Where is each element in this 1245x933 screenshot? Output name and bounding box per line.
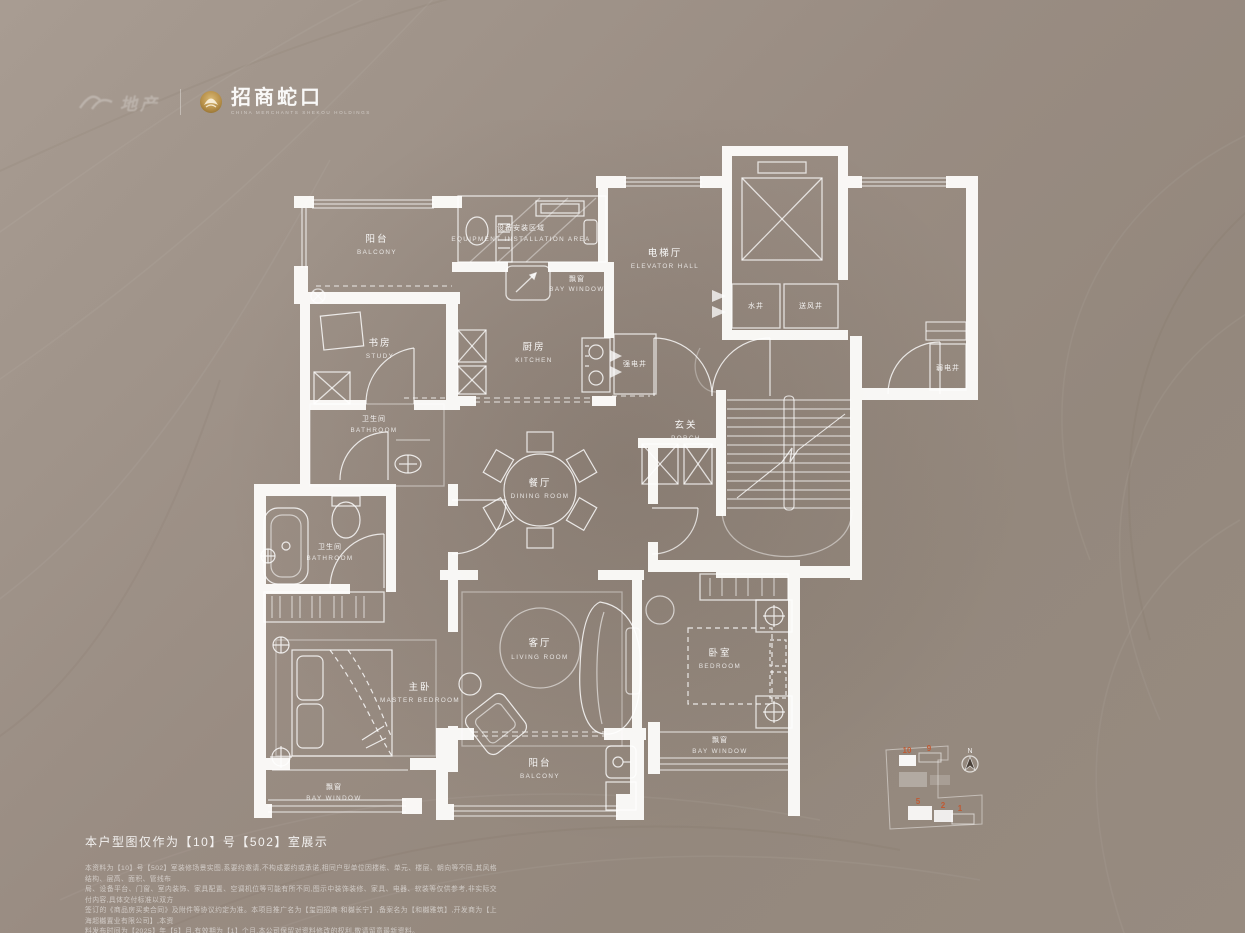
disclaimer-line-3: 签订的《商品房买卖合同》及附件等协议约定为准。本项目推广名为【玺园招商·和樾长宁… (85, 906, 497, 927)
logo-divider (180, 89, 181, 115)
brand-logo-subtext: CHINA MERCHANTS SHEKOU HOLDINGS (231, 111, 371, 116)
disclaimer-line-4: 料发布时间为【2025】年【5】月,有效期为【1】个月,本公司保留对资料修改的权… (85, 927, 497, 933)
partner-logo: 地产 (78, 90, 160, 115)
brand-logo: 招商蛇口 CHINA MERCHANTS SHEKOU HOLDINGS (199, 88, 371, 116)
brand-emblem-icon (199, 90, 223, 114)
partner-logo-flourish (78, 92, 116, 112)
disclaimer-line-1: 本资料为【10】号【502】室装修场景实图,系要约邀请,不构成要约或承诺,相同户… (85, 864, 497, 885)
brand-logo-text: 招商蛇口 (231, 88, 371, 108)
disclaimer-text: 本资料为【10】号【502】室装修场景实图,系要约邀请,不构成要约或承诺,相同户… (85, 864, 497, 933)
unit-caption: 本户型图仅作为【10】号【502】室展示 (85, 833, 328, 850)
floorplan-poster: 地产 招商蛇口 CHINA MERCHANTS SHEKOU HOLDINGS (0, 0, 1245, 933)
plan-backdrop-shade (230, 120, 1020, 840)
header-logos: 地产 招商蛇口 CHINA MERCHANTS SHEKOU HOLDINGS (78, 82, 371, 122)
partner-logo-text: 地产 (120, 90, 160, 115)
disclaimer-line-2: 局、设备平台、门窗、室内装饰、家具配置、空调机位等可能有所不同,图示中装饰装修、… (85, 885, 497, 906)
